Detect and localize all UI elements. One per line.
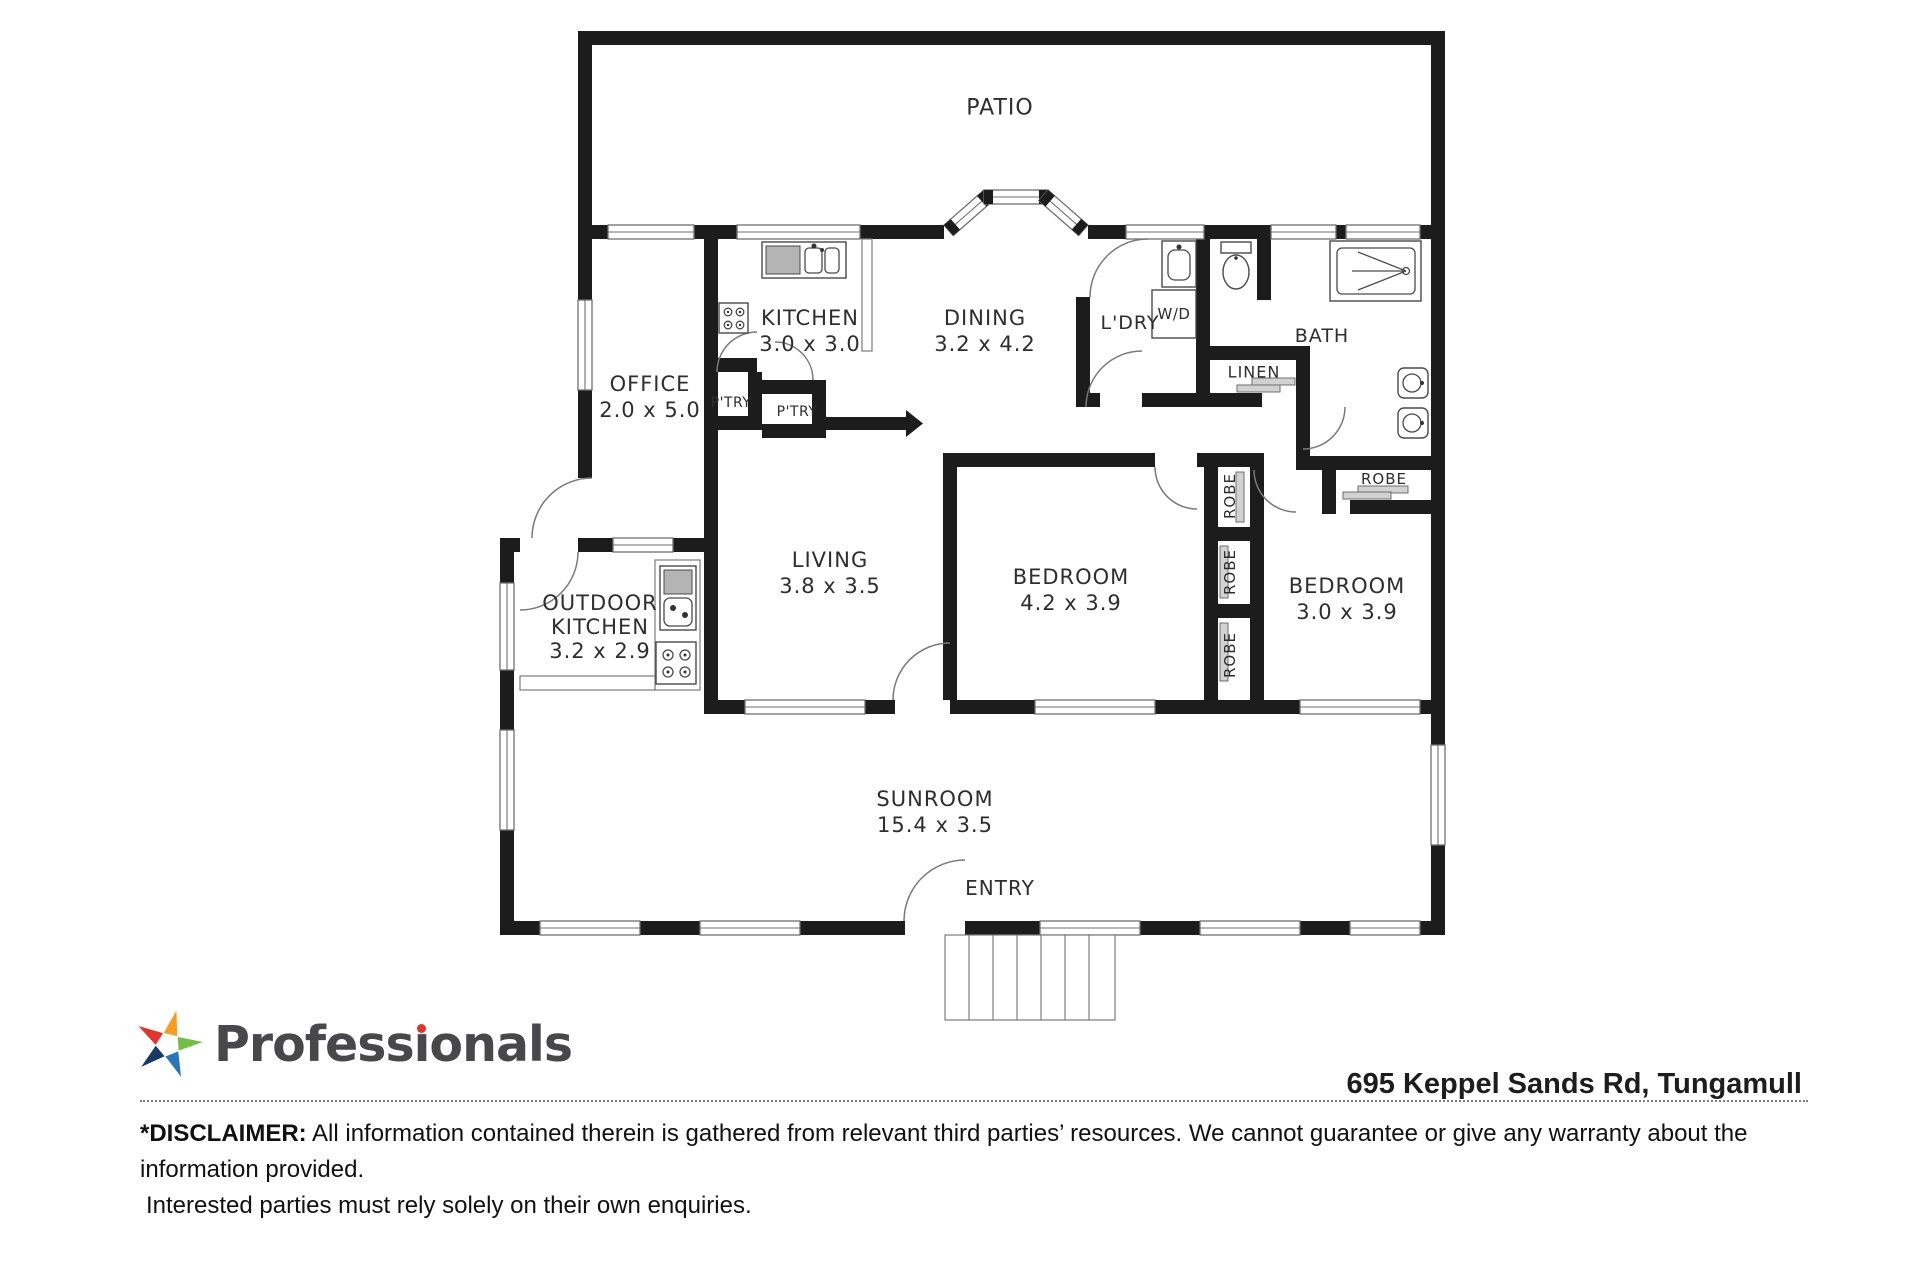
property-address: 695 Keppel Sands Rd, Tungamull	[1347, 1068, 1803, 1101]
disclaimer-text: *DISCLAIMER: All information contained t…	[140, 1116, 1840, 1224]
room-label-bath: BATH	[1295, 325, 1349, 347]
room-label-robe-bath: ROBE	[1361, 470, 1407, 488]
entry-stairs	[945, 935, 1115, 1020]
room-label-living: LIVING	[792, 548, 868, 572]
room-dims-sunroom: 15.4 x 3.5	[877, 813, 993, 837]
office-door-arc	[532, 478, 592, 538]
shower-fixture	[1330, 241, 1421, 301]
laundry-sink-fixture	[1162, 241, 1196, 287]
room-label-robe3: ROBE	[1207, 646, 1253, 664]
bay-window	[944, 190, 1088, 236]
professionals-star-logo	[128, 1002, 208, 1084]
room-dims-living: 3.8 x 3.5	[779, 574, 881, 598]
hall-direction-arrow	[906, 410, 923, 437]
hall-sunroom-door-arc	[893, 643, 950, 700]
disclaimer-line1: All information contained therein is gat…	[140, 1120, 1747, 1183]
room-dims-bedroom2: 3.0 x 3.9	[1296, 600, 1398, 624]
entry-door-arc	[904, 860, 965, 921]
room-dims-bedroom1: 4.2 x 3.9	[1020, 591, 1122, 615]
room-dims-outdoor-kitchen: 3.2 x 2.9	[549, 639, 651, 663]
room-label-bedroom2: BEDROOM	[1289, 574, 1406, 598]
room-label-dining: DINING	[944, 306, 1026, 330]
room-label-outdoor-kitchen-2: KITCHEN	[551, 615, 649, 639]
room-label-entry: ENTRY	[965, 876, 1035, 900]
room-dims-dining: 3.2 x 4.2	[934, 332, 1036, 356]
room-label-robe1: ROBE	[1207, 487, 1253, 505]
room-label-office: OFFICE	[610, 372, 691, 396]
disclaimer-label: *DISCLAIMER:	[140, 1120, 307, 1147]
floorplan-page: PATIO OFFICE 2.0 x 5.0 KITCHEN 3.0 x 3.0…	[0, 0, 1920, 1279]
room-label-wd: W/D	[1158, 305, 1191, 323]
room-label-sunroom: SUNROOM	[876, 787, 993, 811]
room-dims-kitchen: 3.0 x 3.0	[759, 332, 861, 356]
brand-wordmark: Professıonals	[214, 1004, 572, 1084]
room-label-bedroom1: BEDROOM	[1013, 565, 1130, 589]
room-label-outdoor-kitchen-1: OUTDOOR	[542, 591, 658, 615]
laundry-top-door-arc	[1090, 239, 1148, 297]
room-label-robe2: ROBE	[1207, 563, 1253, 581]
toilet-fixture	[1221, 242, 1251, 289]
kitchen-sink-fixture	[762, 242, 846, 278]
room-label-pantry2: P'TRY	[777, 404, 818, 420]
room-label-laundry: L'DRY	[1100, 312, 1159, 334]
room-label-pantry1: P'TRY	[711, 395, 752, 411]
kitchen-counter	[862, 239, 872, 351]
outdoor-sink-fixture	[660, 566, 696, 630]
outdoor-stove-fixture	[656, 642, 696, 684]
dotted-separator	[140, 1100, 1808, 1102]
room-label-kitchen: KITCHEN	[761, 306, 859, 330]
room-dims-office: 2.0 x 5.0	[599, 398, 701, 422]
bath-basin-fixtures	[1398, 368, 1428, 438]
disclaimer-line2: Interested parties must rely solely on t…	[140, 1192, 752, 1219]
room-label-linen: LINEN	[1228, 363, 1281, 382]
bedroom1-door-arc	[1155, 467, 1197, 509]
room-label-patio: PATIO	[966, 96, 1033, 121]
brand-i-red-dot: ı	[414, 1016, 430, 1073]
kitchen-stove-fixture	[719, 303, 748, 333]
